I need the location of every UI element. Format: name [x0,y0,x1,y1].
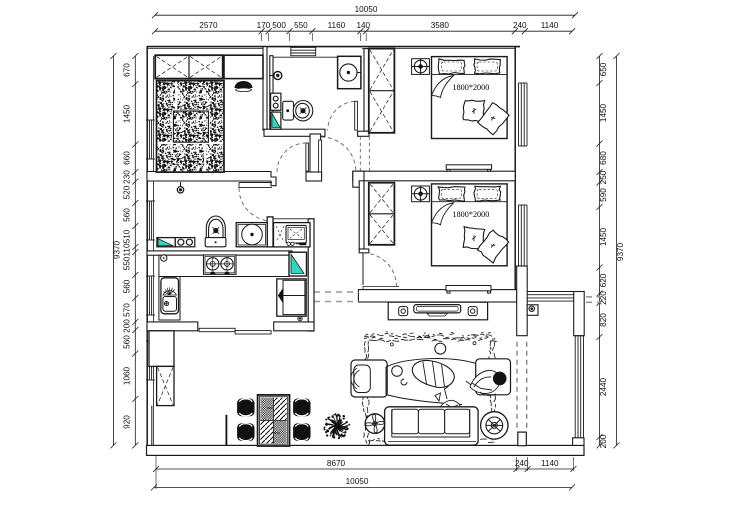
svg-text:9370: 9370 [616,242,625,261]
svg-text:920: 920 [123,415,132,429]
svg-text:140: 140 [356,21,370,30]
svg-text:2440: 2440 [599,377,608,396]
svg-text:230: 230 [123,170,132,184]
svg-text:1160: 1160 [328,21,346,30]
svg-text:500: 500 [272,21,286,30]
svg-text:200: 200 [123,319,132,333]
svg-text:240: 240 [515,459,529,468]
svg-text:660: 660 [123,151,132,165]
svg-text:560: 560 [123,208,132,222]
svg-text:1060: 1060 [123,366,132,385]
svg-text:1800*2000: 1800*2000 [452,83,489,92]
svg-text:560: 560 [123,279,132,293]
svg-text:1140: 1140 [541,459,559,468]
svg-text:1800*2000: 1800*2000 [452,210,489,219]
svg-text:1450: 1450 [599,227,608,246]
svg-text:550: 550 [294,21,308,30]
svg-text:680: 680 [599,151,608,165]
svg-text:550: 550 [123,256,132,270]
svg-text:560: 560 [123,335,132,349]
svg-text:820: 820 [599,313,608,327]
svg-text:510: 510 [123,229,132,243]
svg-text:8670: 8670 [327,459,346,468]
svg-text:3580: 3580 [431,21,450,30]
svg-text:570: 570 [123,303,132,317]
svg-text:620: 620 [599,273,608,287]
svg-text:590: 590 [599,188,608,202]
svg-text:9370: 9370 [113,240,122,259]
svg-text:1450: 1450 [599,103,608,122]
svg-text:650: 650 [599,62,608,76]
svg-text:2570: 2570 [199,21,218,30]
svg-text:1450: 1450 [123,104,132,123]
svg-text:1140: 1140 [541,21,559,30]
svg-text:520: 520 [123,185,132,199]
svg-text:240: 240 [513,21,527,30]
svg-text:110: 110 [123,243,132,256]
svg-text:10050: 10050 [346,477,369,486]
svg-text:200: 200 [599,434,608,448]
svg-text:10050: 10050 [355,5,378,14]
svg-text:250: 250 [599,170,608,184]
svg-text:670: 670 [123,63,132,77]
svg-text:170: 170 [257,21,271,30]
